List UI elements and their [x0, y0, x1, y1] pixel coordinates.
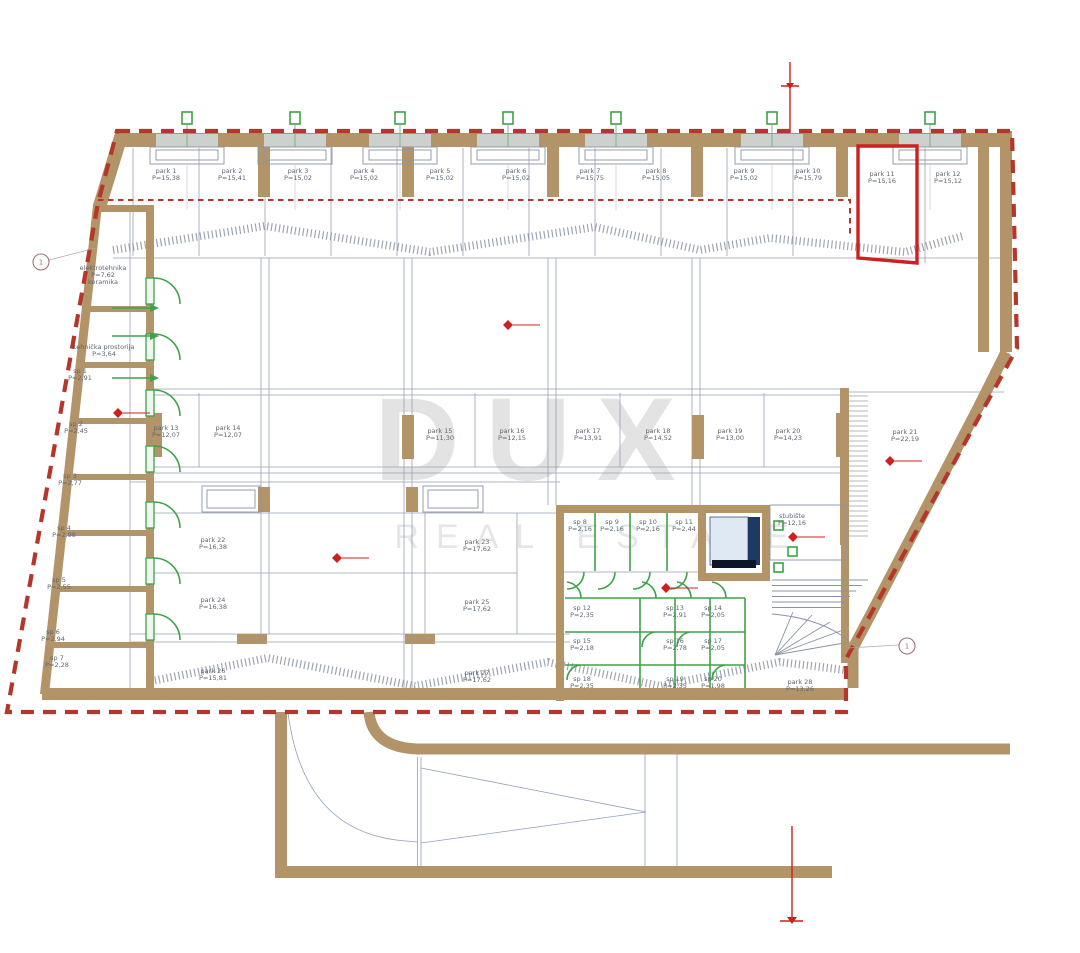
room-label: park 28P=13,26: [786, 678, 814, 693]
ramp-hatching: [846, 396, 868, 536]
room-label: park 4P=15,02: [350, 167, 378, 182]
room-label: sp 13P=2,91: [663, 604, 687, 619]
projection-line-dashed: [98, 200, 850, 234]
vent-marker-icon: [611, 112, 621, 124]
room-label: sp 10P=2,16: [636, 518, 660, 533]
door-arc-icon: [154, 278, 180, 304]
ramp-wall: [840, 388, 849, 545]
room-label: park 21P=22,19: [891, 428, 919, 443]
elevator-shaft-dark: [748, 517, 760, 565]
room-label: stubišteP=12,16: [778, 512, 806, 527]
room-label: park 11P=15,16: [868, 170, 896, 185]
room-label: park 9P=15,02: [730, 167, 758, 182]
vent-marker-icon: [395, 112, 405, 124]
room-label: park 3P=15,02: [284, 167, 312, 182]
room-label: sp 15P=2,18: [570, 637, 594, 652]
room-label: park 8P=15,05: [642, 167, 670, 182]
door-arc-icon: [154, 558, 180, 584]
lower-level-ramp: [275, 712, 1010, 878]
room-label: sp 11P=2,44: [672, 518, 696, 533]
room-label: sp 16P=2,78: [663, 637, 687, 652]
vent-marker-icon: [767, 112, 777, 124]
room-label: park 6P=15,02: [502, 167, 530, 182]
vent-marker-icon: [503, 112, 513, 124]
section-line-top: [781, 62, 799, 133]
room-label: park 23P=17,62: [463, 538, 491, 553]
door-arc-icon: [712, 582, 726, 598]
room-label: park 2P=15,41: [218, 167, 246, 182]
room-label: park 20P=14,23: [774, 427, 802, 442]
door-arc-icon: [154, 390, 180, 416]
level-marker-icon: [503, 320, 513, 330]
room-label: park 15P=11,30: [426, 427, 454, 442]
bottom-wall: [42, 688, 848, 700]
room-label: park 25P=17,62: [463, 598, 491, 613]
vent-marker-icon: [182, 112, 192, 124]
room-label: park 5P=15,02: [426, 167, 454, 182]
door-arc-icon: [642, 632, 655, 647]
right-wall: [1000, 131, 1012, 352]
vent-marker-icon: [290, 112, 300, 124]
room-label: sp 12P=2,35: [570, 604, 594, 619]
level-marker-icon: [113, 408, 123, 418]
door-arc-icon: [633, 572, 650, 589]
room-label: sp 20P=1,98: [701, 675, 725, 690]
garage-floor-plan: DUX REAL ESTATE: [0, 0, 1080, 953]
room-label: sp 19P=2,35: [663, 675, 687, 690]
room-label: park 1P=15,38: [152, 167, 180, 182]
room-label: park 27P=17,62: [463, 669, 491, 684]
door-arc-icon: [670, 572, 687, 589]
grid-bubble-label: 1: [39, 259, 43, 267]
level-marker-icon: [885, 456, 895, 466]
level-marker-icon: [332, 553, 342, 563]
room-label: park 12P=15,12: [934, 170, 962, 185]
room-label: sp 18P=2,35: [570, 675, 594, 690]
room-label: park 17P=13,91: [574, 427, 602, 442]
room-label: park 13P=12,07: [152, 424, 180, 439]
room-label: park 7P=15,75: [576, 167, 604, 182]
room-label: park 10P=15,79: [794, 167, 822, 182]
door-arc-icon: [154, 614, 180, 640]
room-label: park 24P=16,38: [199, 596, 227, 611]
vent-marker-icon: [925, 112, 935, 124]
door-arc-icon: [154, 502, 180, 528]
door-arc-icon: [154, 334, 180, 360]
room-label: sp 5P=2,55: [47, 576, 71, 591]
room-label: park 26P=15,81: [199, 667, 227, 682]
room-label: park 16P=12,15: [498, 427, 526, 442]
floor-plan-page: DUX REAL ESTATE: [0, 0, 1080, 953]
room-label: sp 1P=2,91: [68, 367, 92, 382]
room-label: sp 14P=2,05: [701, 604, 725, 619]
fixture-icon: [774, 563, 783, 572]
door-arc-icon: [598, 572, 615, 589]
grid-bubble-label: 1: [905, 643, 909, 651]
room-label: park 19P=13,00: [716, 427, 744, 442]
room-label: sp 4P=2,98: [52, 524, 76, 539]
door-arc-icon: [677, 582, 691, 598]
ramp-guides: [288, 713, 677, 866]
room-label: sp 17P=2,05: [701, 637, 725, 652]
elevator: [710, 517, 760, 568]
stepped-right-wall: [853, 352, 1006, 688]
room-label: sp 6P=2,94: [41, 628, 65, 643]
room-label: park 18P=14,52: [644, 427, 672, 442]
level-marker-icon: [661, 583, 671, 593]
room-label: park 22P=16,38: [199, 536, 227, 551]
room-label: park 14P=12,07: [214, 424, 242, 439]
